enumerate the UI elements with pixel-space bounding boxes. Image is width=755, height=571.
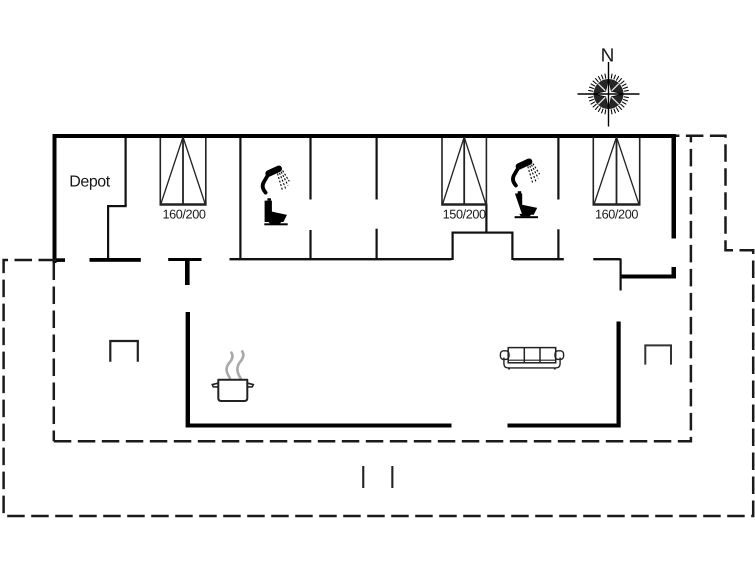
- svg-text:160/200: 160/200: [595, 207, 638, 221]
- svg-text:Depot: Depot: [69, 173, 110, 190]
- svg-text:N: N: [601, 46, 615, 67]
- svg-text:150/200: 150/200: [443, 207, 486, 221]
- svg-text:160/200: 160/200: [162, 207, 205, 221]
